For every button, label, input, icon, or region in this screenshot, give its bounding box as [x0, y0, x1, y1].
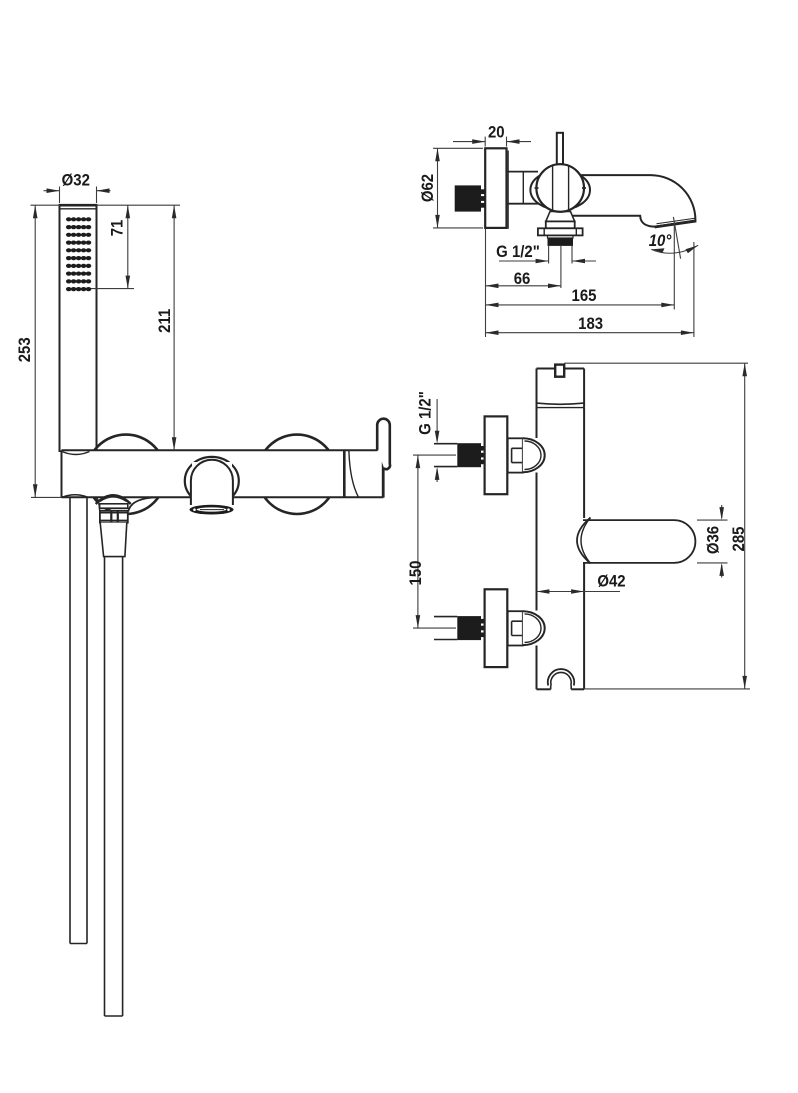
svg-text:150: 150 — [407, 560, 425, 585]
svg-text:10°: 10° — [649, 232, 672, 250]
svg-text:Ø62: Ø62 — [419, 174, 437, 202]
svg-text:165: 165 — [572, 287, 597, 305]
svg-text:253: 253 — [16, 337, 34, 362]
svg-text:211: 211 — [156, 309, 174, 333]
svg-text:Ø36: Ø36 — [705, 526, 723, 554]
svg-text:66: 66 — [514, 270, 531, 288]
svg-text:71: 71 — [109, 220, 127, 237]
svg-text:G 1/2": G 1/2" — [417, 391, 435, 435]
svg-text:285: 285 — [730, 526, 748, 551]
svg-text:183: 183 — [578, 315, 603, 333]
svg-text:G 1/2": G 1/2" — [496, 243, 540, 261]
svg-text:Ø32: Ø32 — [62, 171, 90, 189]
svg-text:20: 20 — [488, 124, 505, 142]
svg-text:Ø42: Ø42 — [597, 573, 625, 591]
